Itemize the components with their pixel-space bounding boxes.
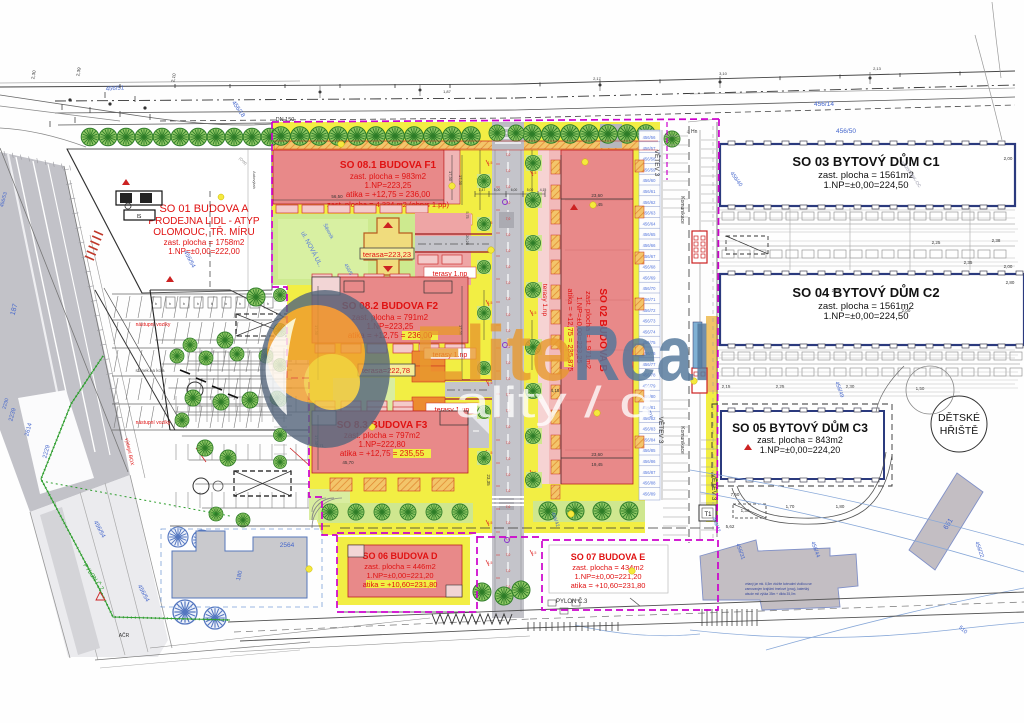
svg-text:1,5: 1,5: [532, 551, 537, 555]
svg-text:OLOMOUC, TŘ. MÍRU: OLOMOUC, TŘ. MÍRU: [153, 225, 254, 238]
svg-text:atika = +10,60=231,80: atika = +10,60=231,80: [571, 581, 646, 590]
svg-text:4,15: 4,15: [540, 188, 547, 192]
svg-text:1,5: 1,5: [488, 521, 493, 525]
svg-text:1,5: 1,5: [488, 161, 493, 165]
svg-text:7,0: 7,0: [506, 281, 511, 285]
svg-text:2,00: 2,00: [1004, 156, 1013, 161]
svg-text:2,00: 2,00: [1004, 264, 1013, 269]
svg-text:SO 08.1 BUDOVA F1: SO 08.1 BUDOVA F1: [340, 160, 437, 171]
svg-text:7,0: 7,0: [506, 217, 511, 221]
svg-text:SO 05 BYTOVÝ DŮM C3: SO 05 BYTOVÝ DŮM C3: [732, 419, 868, 435]
svg-text:19,45: 19,45: [591, 462, 603, 467]
svg-text:VĚTEV 3: VĚTEV 3: [653, 150, 662, 177]
svg-text:SO 06 BUDOVA D: SO 06 BUDOVA D: [362, 551, 438, 561]
svg-text:T1: T1: [704, 512, 712, 518]
svg-text:zast. plocha = 1758m2: zast. plocha = 1758m2: [164, 238, 245, 247]
svg-text:7,0: 7,0: [506, 569, 511, 573]
svg-text:zamovaným krajšími tmelové (pr: zamovaným krajšími tmelové (proq), kater…: [745, 587, 810, 591]
svg-text:vrtaný jar mk. 6,5m vložíte ko: vrtaný jar mk. 6,5m vložíte kotrvalmi vl…: [745, 582, 812, 586]
svg-text:7,0: 7,0: [506, 249, 511, 253]
svg-text:456/85: 456/85: [643, 448, 656, 453]
svg-text:1,5: 1,5: [488, 301, 493, 305]
svg-text:IS: IS: [137, 214, 142, 220]
svg-text:456/56: 456/56: [643, 135, 656, 140]
svg-text:⌂ Hn: ⌂ Hn: [687, 129, 698, 135]
svg-text:1.NP=±0,00=224,50: 1.NP=±0,00=224,50: [824, 180, 909, 191]
svg-text:5,00: 5,00: [527, 188, 534, 192]
svg-text:456/88: 456/88: [643, 481, 656, 486]
svg-text:7,0: 7,0: [506, 489, 511, 493]
svg-text:456/63: 456/63: [643, 211, 656, 216]
svg-text:5,75: 5,75: [465, 212, 469, 219]
svg-text:2,30: 2,30: [846, 384, 855, 389]
svg-text:2,13: 2,13: [873, 66, 882, 71]
svg-text:Autovýtah: Autovýtah: [252, 171, 257, 189]
svg-text:456/60: 456/60: [643, 178, 656, 183]
svg-text:HŘIŠTĚ: HŘIŠTĚ: [940, 424, 979, 437]
svg-text:456/86: 456/86: [643, 459, 656, 464]
svg-text:2,25: 2,25: [776, 384, 785, 389]
svg-text:terasa=223,23: terasa=223,23: [363, 250, 411, 259]
svg-text:2,35: 2,35: [964, 260, 973, 265]
svg-text:SO 07 BUDOVA E: SO 07 BUDOVA E: [571, 552, 646, 562]
svg-text:5,00: 5,00: [494, 188, 501, 192]
svg-text:1,5: 1,5: [488, 561, 493, 565]
svg-text:zast. plocha = 983m2: zast. plocha = 983m2: [350, 172, 427, 181]
svg-text:3,10: 3,10: [719, 71, 728, 76]
svg-text:atika = +10,60=231,80: atika = +10,60=231,80: [363, 580, 438, 589]
svg-text:456/67: 456/67: [643, 254, 656, 259]
svg-text:1.NP=±0,00=221,20: 1.NP=±0,00=221,20: [366, 571, 433, 580]
svg-text:Komunikace: Komunikace: [679, 196, 685, 224]
svg-text:SO 04 BYTOVÝ DŮM C2: SO 04 BYTOVÝ DŮM C2: [792, 284, 939, 300]
svg-text:17,30: 17,30: [458, 175, 463, 186]
svg-text:7,0: 7,0: [506, 521, 511, 525]
svg-text:VĚTEV 3: VĚTEV 3: [657, 417, 666, 444]
svg-text:20,25: 20,25: [465, 235, 470, 246]
svg-text:7,0: 7,0: [506, 169, 511, 173]
svg-text:2,80: 2,80: [1006, 280, 1015, 285]
svg-text:7,0: 7,0: [506, 297, 511, 301]
svg-text:atika = +12,75 = 236,00: atika = +12,75 = 236,00: [346, 190, 431, 199]
svg-text:abude mít výška 35m + dikta 35: abude mít výška 35m + dikta 35,0m: [745, 592, 796, 596]
svg-text:456/71: 456/71: [643, 297, 656, 302]
svg-text:456/87: 456/87: [643, 470, 656, 475]
svg-text:2,15: 2,15: [722, 384, 731, 389]
svg-text:456/50: 456/50: [836, 128, 856, 135]
svg-text:456/69: 456/69: [643, 275, 656, 280]
svg-text:456/89: 456/89: [643, 491, 656, 496]
svg-text:1,50: 1,50: [916, 386, 925, 391]
svg-text:456/64: 456/64: [643, 221, 656, 226]
svg-text:nástupní vozíky: nástupní vozíky: [136, 322, 171, 328]
svg-text:2,38: 2,38: [992, 238, 1001, 243]
svg-text:23,35: 23,35: [486, 474, 491, 486]
svg-text:7,0: 7,0: [506, 441, 511, 445]
svg-text:6,00: 6,00: [511, 188, 518, 192]
svg-text:ality / d: ality / d: [455, 378, 654, 427]
svg-text:23,60: 23,60: [591, 452, 603, 457]
svg-text:7,0: 7,0: [506, 233, 511, 237]
svg-text:17,30: 17,30: [448, 171, 453, 182]
svg-text:atika = +12,75 = 235,55: atika = +12,75 = 235,55: [340, 449, 425, 458]
svg-text:1.NP=222,80: 1.NP=222,80: [359, 440, 406, 449]
svg-text:456/14: 456/14: [814, 101, 834, 108]
svg-text:456/68: 456/68: [643, 265, 656, 270]
svg-text:5,62: 5,62: [726, 524, 735, 529]
svg-text:stánek na kola: stánek na kola: [135, 368, 165, 373]
svg-text:2564: 2564: [280, 542, 295, 549]
svg-text:SO 01 BUDOVA A: SO 01 BUDOVA A: [159, 203, 249, 215]
svg-text:1.NP=±0,00=224,20: 1.NP=±0,00=224,20: [760, 445, 841, 455]
svg-text:456/62: 456/62: [643, 200, 656, 205]
svg-text:Komunikace: Komunikace: [679, 426, 685, 454]
svg-text:45,70: 45,70: [342, 460, 354, 465]
svg-text:1.NP=±0,00=224,50: 1.NP=±0,00=224,50: [824, 311, 909, 322]
svg-text:2,25: 2,25: [932, 240, 941, 245]
svg-text:56,50: 56,50: [331, 194, 343, 199]
svg-text:zast. plocha = 446m2: zast. plocha = 446m2: [364, 562, 436, 571]
svg-text:SO 03 BYTOVÝ DŮM C1: SO 03 BYTOVÝ DŮM C1: [792, 153, 939, 169]
svg-text:1.NP=±0,00=222,00: 1.NP=±0,00=222,00: [168, 247, 240, 256]
svg-text:nástupní vozíky: nástupní vozíky: [136, 420, 171, 426]
svg-text:456/65: 456/65: [643, 232, 656, 237]
svg-text:456/66: 456/66: [643, 243, 656, 248]
svg-text:7,0: 7,0: [506, 153, 511, 157]
svg-text:1.NP=223,25: 1.NP=223,25: [365, 181, 412, 190]
svg-text:1,5: 1,5: [532, 171, 537, 175]
svg-text:456/61: 456/61: [643, 189, 656, 194]
svg-text:23,60: 23,60: [591, 193, 603, 198]
svg-text:7,0: 7,0: [506, 457, 511, 461]
svg-text:1,87: 1,87: [443, 89, 452, 94]
svg-text:1,47: 1,47: [479, 188, 486, 192]
svg-text:456/84: 456/84: [643, 437, 656, 442]
svg-text:PRODEJNA LIDL - ATYP: PRODEJNA LIDL - ATYP: [148, 216, 259, 227]
svg-text:1,80: 1,80: [836, 504, 845, 509]
svg-text:7,0: 7,0: [506, 553, 511, 557]
svg-text:7,0: 7,0: [506, 265, 511, 269]
svg-text:7,0: 7,0: [506, 505, 511, 509]
svg-text:DĚTSKÉ: DĚTSKÉ: [938, 411, 980, 424]
svg-text:zast. plocha = 843m2: zast. plocha = 843m2: [757, 435, 843, 445]
svg-text:456/83: 456/83: [643, 427, 656, 432]
svg-text:456/70: 456/70: [643, 286, 656, 291]
svg-text:1,70: 1,70: [786, 504, 795, 509]
svg-text:AČR: AČR: [119, 632, 130, 639]
svg-text:7,0: 7,0: [506, 473, 511, 477]
svg-text:2,17: 2,17: [593, 76, 602, 81]
svg-text:2,00: 2,00: [902, 308, 911, 313]
svg-text:2,25: 2,25: [832, 288, 841, 293]
